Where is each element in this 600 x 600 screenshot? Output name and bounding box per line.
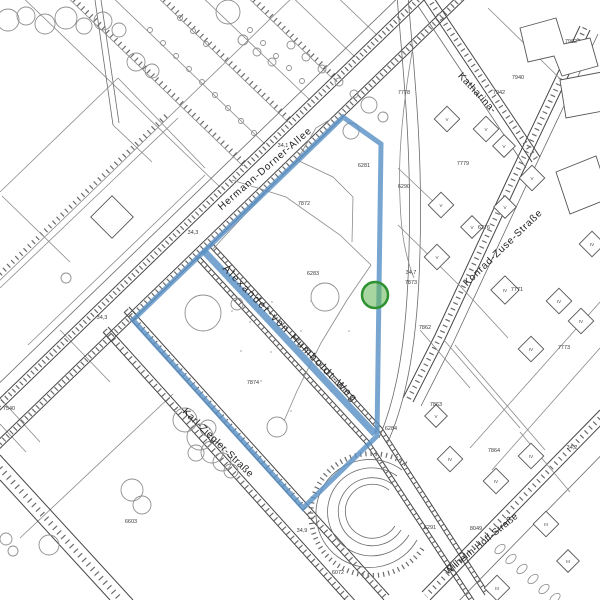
- floor-count-numeral: V: [470, 225, 473, 230]
- parcel-number: 7778: [398, 90, 410, 96]
- floor-count-numeral: V: [435, 255, 438, 260]
- floor-count-numeral: IV: [579, 319, 583, 324]
- street-alexander-von-humboldt-weg: [197, 244, 488, 600]
- floor-count-numeral: IV: [529, 454, 533, 459]
- street-label-hermann-dorner-allee: Hermann-Dorner-Allee: [216, 125, 314, 212]
- elevation-value: 34,3: [97, 315, 108, 321]
- floor-count-numeral: V: [502, 144, 505, 149]
- floor-count-numeral: V: [434, 414, 437, 419]
- street-hermann-dorner-allee: [0, 0, 470, 458]
- floor-count-numeral: III: [566, 559, 570, 564]
- floor-count-numeral: V: [439, 203, 442, 208]
- parcel-number: 6284: [385, 426, 397, 432]
- parcel-number: 7940: [512, 75, 524, 81]
- parcel-number: 7540: [3, 406, 15, 412]
- cadastral-map: 7902794079427778777962906281787262837873…: [0, 0, 600, 600]
- floor-count-numeral: IV: [448, 457, 452, 462]
- parcel-number: 7779: [457, 161, 469, 167]
- parcel-number: 6291: [424, 525, 436, 531]
- floor-count-numeral: III: [544, 522, 548, 527]
- floor-count-numeral: V: [530, 176, 533, 181]
- elevation-value: 34,3: [188, 230, 199, 236]
- parcel-number: 7902: [565, 39, 577, 45]
- elevation-value: 34,2: [567, 445, 578, 451]
- parcel-number: 6283: [307, 271, 319, 277]
- bottom-left-linework: [0, 394, 173, 600]
- floor-count-numeral: III: [495, 586, 499, 591]
- street-label-katharina: Katharina-: [455, 71, 498, 116]
- floor-count-numeral: IV: [529, 347, 533, 352]
- street-name-labels: Hermann-Dorner-AlleeAlexander-von-Humbol…: [180, 71, 545, 577]
- parcel-number: 6290: [398, 184, 410, 190]
- location-marker[interactable]: [362, 282, 388, 308]
- parcel-number: 7862: [419, 325, 431, 331]
- parcel-number: 6603: [125, 519, 137, 525]
- turning-loop: [311, 453, 424, 575]
- elevation-value: 34,9: [297, 528, 308, 534]
- street-karl-ziegler-strasse: [103, 307, 389, 600]
- parcel-number: 7873: [405, 280, 417, 286]
- elevation-value: 34,7: [406, 270, 417, 276]
- parcel-number: 7874: [247, 380, 259, 386]
- floor-count-numeral: IV: [503, 288, 507, 293]
- parcel-number: 7773: [558, 345, 570, 351]
- parcel-number: 7863: [430, 402, 442, 408]
- floor-count-numeral: V: [484, 127, 487, 132]
- parcel-number: 6072: [332, 570, 344, 576]
- floor-count-numeral: IV: [557, 299, 561, 304]
- street-katharina: [418, 0, 540, 168]
- parcel-number: 6276: [478, 225, 490, 231]
- parcel-number: 6281: [358, 163, 370, 169]
- parcel-number: 7942: [493, 90, 505, 96]
- parcel-number: 8049: [470, 526, 482, 532]
- floor-count-numeral: V: [445, 117, 448, 122]
- floor-count-numeral: IV: [494, 479, 498, 484]
- floor-count-numeral: IV: [590, 242, 594, 247]
- parcel-number: 7771: [511, 287, 523, 293]
- allotment-linework: [0, 0, 386, 371]
- street-label-alexander-von-humboldt-weg: Alexander-von-Humboldt-Weg: [220, 263, 360, 405]
- floor-count-numeral: V: [503, 205, 506, 210]
- parcel-number: 7864: [488, 448, 500, 454]
- parcel-number: 7872: [298, 201, 310, 207]
